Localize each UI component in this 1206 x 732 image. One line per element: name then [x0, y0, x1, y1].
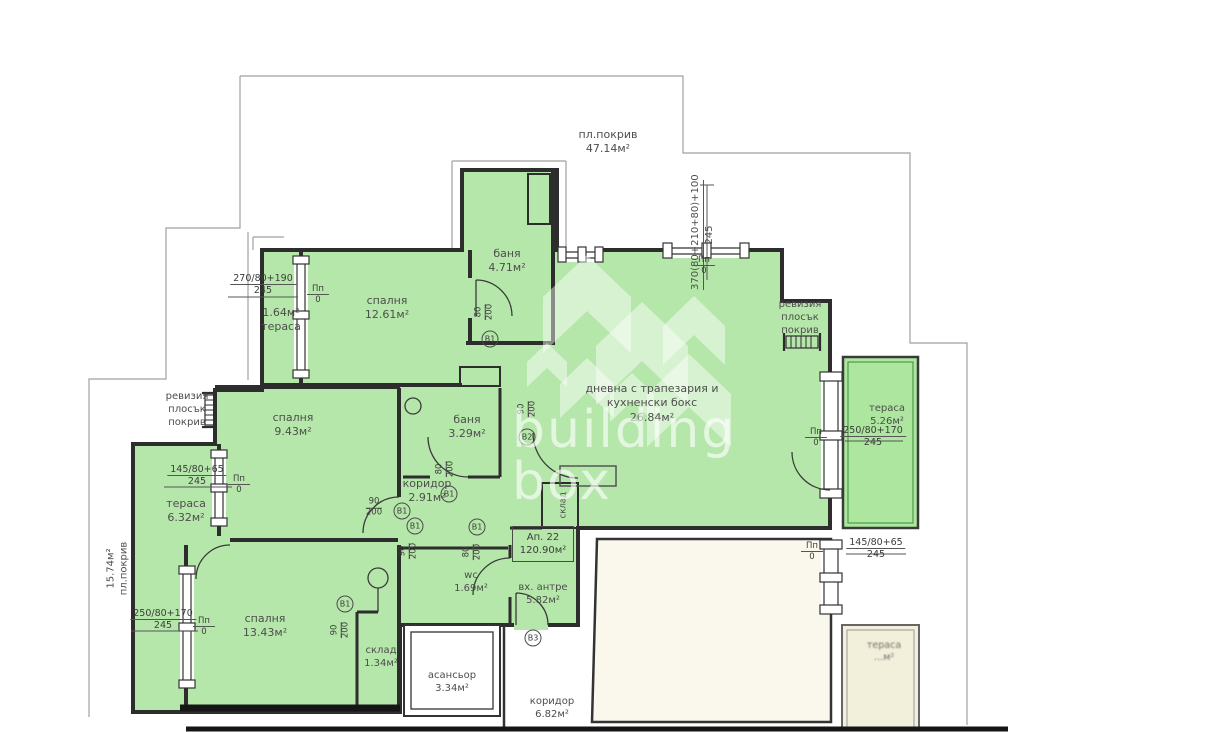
door-tag-b1: B1 — [469, 519, 486, 536]
label-bedroom-943: спалня 9.43м² — [273, 411, 314, 440]
floorplan-canvas: пл.покрив 47.14м² 370(80+210+80)+100 245… — [0, 0, 1206, 732]
adjacent-unit — [592, 539, 831, 722]
pp-marker: Пп0 — [228, 474, 250, 495]
label-bath-329: баня 3.29м² — [448, 413, 485, 442]
dim-250-left: 250/80+170 245 — [130, 608, 196, 632]
pp-marker: Пп0 — [805, 427, 827, 448]
label-bedroom-1343: спалня 13.43м² — [243, 612, 287, 641]
dim-145-left: 145/80+65 245 — [167, 464, 226, 488]
pp-marker: Пп0 — [307, 284, 329, 305]
label-terrace-164: 1.64м² тераса — [261, 306, 301, 335]
door-tag-b1: B1 — [337, 596, 354, 613]
label-wc: wc 1.69м² — [454, 569, 488, 595]
door-size-90-200: 90200 — [399, 543, 420, 559]
door-tag-b1: B1 — [407, 518, 424, 535]
door-size-80-200: 80200 — [436, 461, 457, 477]
pp-marker: Пп0 — [193, 616, 215, 637]
door-tag-b1: B1 — [441, 486, 458, 503]
door-tag-b1: B1 — [394, 503, 411, 520]
label-bedroom-1261: спалня 12.61м² — [365, 294, 409, 323]
apartment-id-box: Ап. 22 120.90м² — [512, 526, 574, 562]
label-revision-left: ревизия плосък покрив — [166, 390, 209, 429]
dim-270: 270/80+190 245 — [230, 273, 296, 297]
label-bath-471: баня 4.71м² — [488, 247, 525, 276]
label-storage-134: склад 1.34м² — [364, 644, 398, 670]
label-roof-top: пл.покрив 47.14м² — [579, 128, 638, 157]
door-size-90-200: 90200 — [366, 498, 382, 519]
label-terrace-bottom-right: тераса …м² — [867, 640, 901, 665]
door-size-80-200: 80200 — [463, 544, 484, 560]
pp-marker: Пп0 — [693, 255, 715, 276]
door-size-90-200: 90200 — [331, 622, 352, 638]
door-size-80-200: 80200 — [475, 304, 496, 320]
label-elevator: асансьор 3.34м² — [428, 669, 476, 695]
label-roof-left: 15.74м² пл.покрив — [106, 523, 131, 615]
label-revision-right: ревизия плосък покрив — [779, 298, 822, 337]
dim-145-right: 145/80+65 245 — [846, 537, 905, 561]
watermark-text: building box — [512, 404, 736, 508]
label-entry-hall: вх. антре 5.82м² — [518, 581, 567, 607]
label-terrace-632: тераса 6.32м² — [166, 497, 206, 526]
dim-250-right: 250/80+170 245 — [840, 425, 906, 449]
door-tag-b3: B3 — [525, 630, 542, 647]
label-corridor-682: коридор 6.82м² — [530, 695, 574, 721]
pp-marker: Пп0 — [801, 541, 823, 562]
door-tag-b1: B1 — [482, 331, 499, 348]
